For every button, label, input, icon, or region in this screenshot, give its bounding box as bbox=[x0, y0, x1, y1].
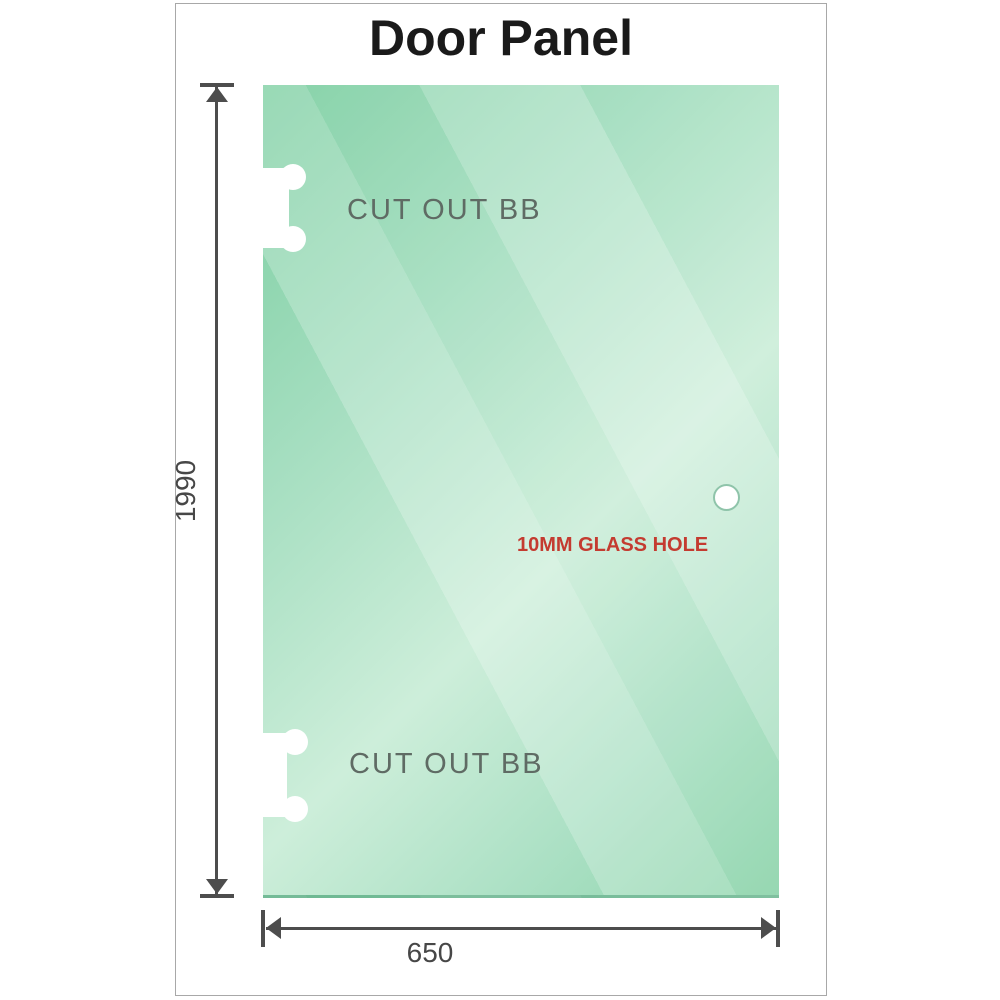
glass-hole bbox=[713, 484, 740, 511]
dimension-tick-left bbox=[261, 910, 265, 947]
arrowhead-up-icon bbox=[206, 87, 228, 102]
dimension-tick-right bbox=[776, 910, 780, 947]
dimension-tick-bottom bbox=[200, 894, 234, 898]
width-dimension-label: 650 bbox=[385, 938, 475, 968]
height-dimension-label: 1990 bbox=[171, 445, 201, 537]
cutout-lobe bbox=[282, 796, 308, 822]
arrowhead-right-icon bbox=[761, 917, 776, 939]
cutout-label-bottom: CUT OUT BB bbox=[349, 748, 544, 781]
arrowhead-down-icon bbox=[206, 879, 228, 894]
width-dimension-line bbox=[266, 927, 776, 930]
page-title: Door Panel bbox=[175, 11, 827, 66]
arrowhead-left-icon bbox=[266, 917, 281, 939]
glass-hole-label: 10MM GLASS HOLE bbox=[517, 534, 708, 557]
height-dimension-line bbox=[215, 87, 218, 894]
cutout-lobe bbox=[282, 729, 308, 755]
cutout-lobe bbox=[280, 226, 306, 252]
cutout-label-top: CUT OUT BB bbox=[347, 194, 542, 227]
cutout-lobe bbox=[280, 164, 306, 190]
